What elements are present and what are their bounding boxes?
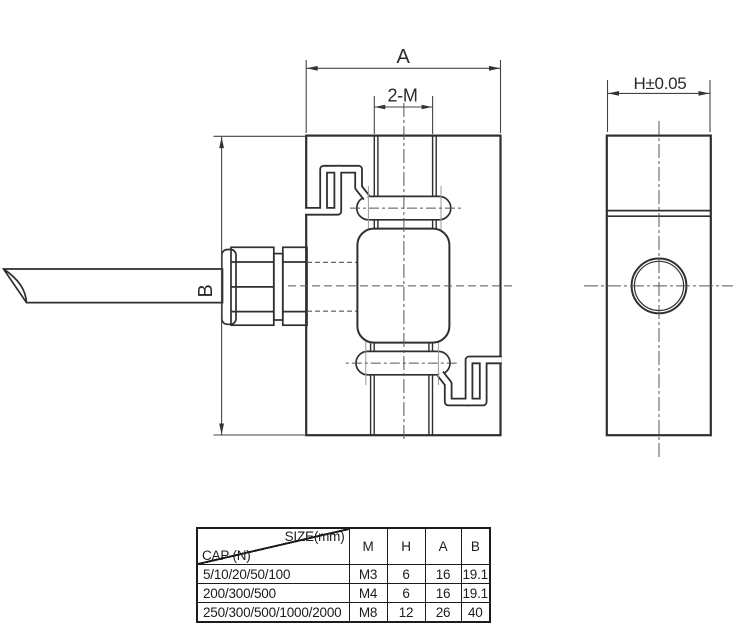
- table-row: 250/300/500/1000/2000 M8 12 26 40: [197, 603, 490, 623]
- dim-a-label: A: [396, 46, 410, 68]
- dim-b-label: B: [195, 284, 217, 297]
- front-view: A 2-M B: [4, 46, 513, 440]
- col-header-m: M: [349, 528, 387, 565]
- arrowhead: [219, 137, 224, 148]
- size-header-label: SIZE(mm): [285, 529, 345, 544]
- col-header-b: B: [461, 528, 490, 565]
- spec-table: SIZE(mm) CAP (N) M H A B 5/10/20/50/100 …: [196, 527, 491, 623]
- drawing-canvas: A 2-M B: [0, 0, 737, 641]
- table-row: 200/300/500 M4 6 16 19.1: [197, 584, 490, 603]
- cap-cell: 5/10/20/50/100: [197, 565, 349, 584]
- dim-h-label: H±0.05: [634, 74, 687, 93]
- cable: [4, 269, 223, 303]
- table-corner-cell: SIZE(mm) CAP (N): [197, 528, 349, 565]
- arrowhead: [489, 66, 500, 71]
- arrowhead: [307, 66, 318, 71]
- cap-cell: 200/300/500: [197, 584, 349, 603]
- m-cell: M8: [349, 603, 387, 623]
- table-row: 5/10/20/50/100 M3 6 16 19.1: [197, 565, 490, 584]
- cap-header-label: CAP (N): [202, 548, 251, 563]
- m-cell: M4: [349, 584, 387, 603]
- arrowhead: [219, 424, 224, 435]
- h-cell: 6: [387, 565, 425, 584]
- col-header-h: H: [387, 528, 425, 565]
- h-cell: 6: [387, 584, 425, 603]
- b-cell: 19.1: [461, 565, 490, 584]
- arrowhead: [422, 105, 433, 110]
- h-cell: 12: [387, 603, 425, 623]
- table-header-row: SIZE(mm) CAP (N) M H A B: [197, 528, 490, 565]
- dim-2m-label: 2-M: [387, 86, 417, 106]
- a-cell: 26: [425, 603, 461, 623]
- m-cell: M3: [349, 565, 387, 584]
- arrowhead: [699, 91, 710, 96]
- a-cell: 16: [425, 565, 461, 584]
- a-cell: 16: [425, 584, 461, 603]
- side-view: H±0.05: [584, 74, 733, 458]
- b-cell: 19.1: [461, 584, 490, 603]
- b-cell: 40: [461, 603, 490, 623]
- gland-collar: [274, 254, 283, 320]
- cap-cell: 250/300/500/1000/2000: [197, 603, 349, 623]
- size-table: SIZE(mm) CAP (N) M H A B 5/10/20/50/100 …: [196, 527, 491, 623]
- arrowhead: [608, 91, 619, 96]
- col-header-a: A: [425, 528, 461, 565]
- arrowhead: [375, 105, 386, 110]
